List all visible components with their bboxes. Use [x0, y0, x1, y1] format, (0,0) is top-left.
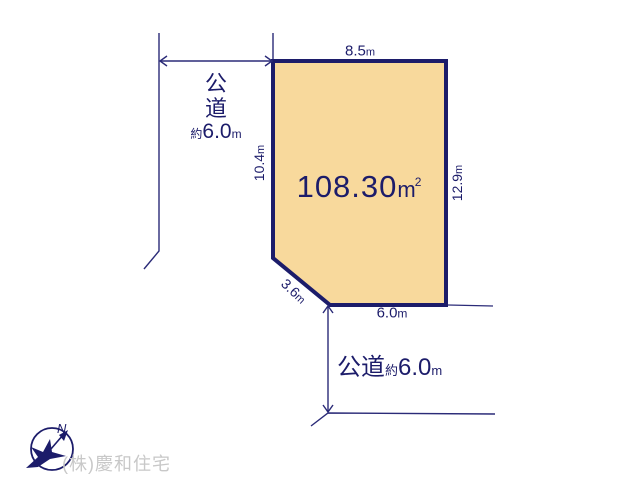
south-road-name: 公道	[337, 354, 385, 381]
south-road-approx: 約	[385, 363, 398, 378]
dimension-bottom-value: 6.0	[377, 305, 398, 322]
south-road-width-unit: m	[431, 363, 442, 378]
west-road-width-label: 約6.0m	[190, 120, 241, 144]
plot-area-value: 108.30	[297, 169, 398, 204]
west-road-far-boundary-line	[144, 33, 159, 269]
west-road-approx: 約	[190, 127, 202, 141]
site-plan-diagram: N 108.30m2 8.5m 10.4m 12.9m 3.6m 6.0m 公 …	[0, 0, 640, 480]
east-extension-line	[448, 305, 493, 306]
dimension-right-value: 12.9	[449, 174, 465, 201]
plot-area-superscript: 2	[415, 175, 423, 189]
west-road-name: 公 道	[205, 71, 227, 121]
site-plan-drawing: N	[0, 0, 640, 480]
dimension-left-unit: m	[255, 145, 267, 154]
dimension-left-value: 10.4	[251, 154, 267, 181]
company-credit: (株)慶和住宅	[62, 450, 171, 476]
dimension-left: 10.4m	[251, 145, 267, 181]
south-road-label: 公道約6.0m	[337, 347, 442, 382]
south-road-far-boundary-line	[311, 413, 495, 426]
west-road-width-arrow	[160, 56, 272, 66]
dimension-right: 12.9m	[449, 165, 465, 201]
dimension-top-value: 8.5	[345, 43, 366, 60]
west-road-width-unit: m	[232, 127, 242, 141]
plot-area-unit: m	[397, 177, 415, 202]
compass-needle-line	[38, 435, 63, 464]
dimension-bottom: 6.0m	[377, 305, 408, 322]
dimension-top: 8.5m	[345, 43, 375, 60]
compass-north-label: N	[57, 421, 67, 436]
south-road-width-arrow	[323, 306, 333, 412]
plot-area-label: 108.30m2	[297, 169, 424, 205]
west-road-width-value: 6.0	[202, 120, 231, 143]
dimension-right-unit: m	[453, 165, 465, 174]
south-road-width-value: 6.0	[398, 354, 431, 381]
dimension-bottom-unit: m	[397, 307, 407, 321]
dimension-top-unit: m	[366, 47, 375, 59]
